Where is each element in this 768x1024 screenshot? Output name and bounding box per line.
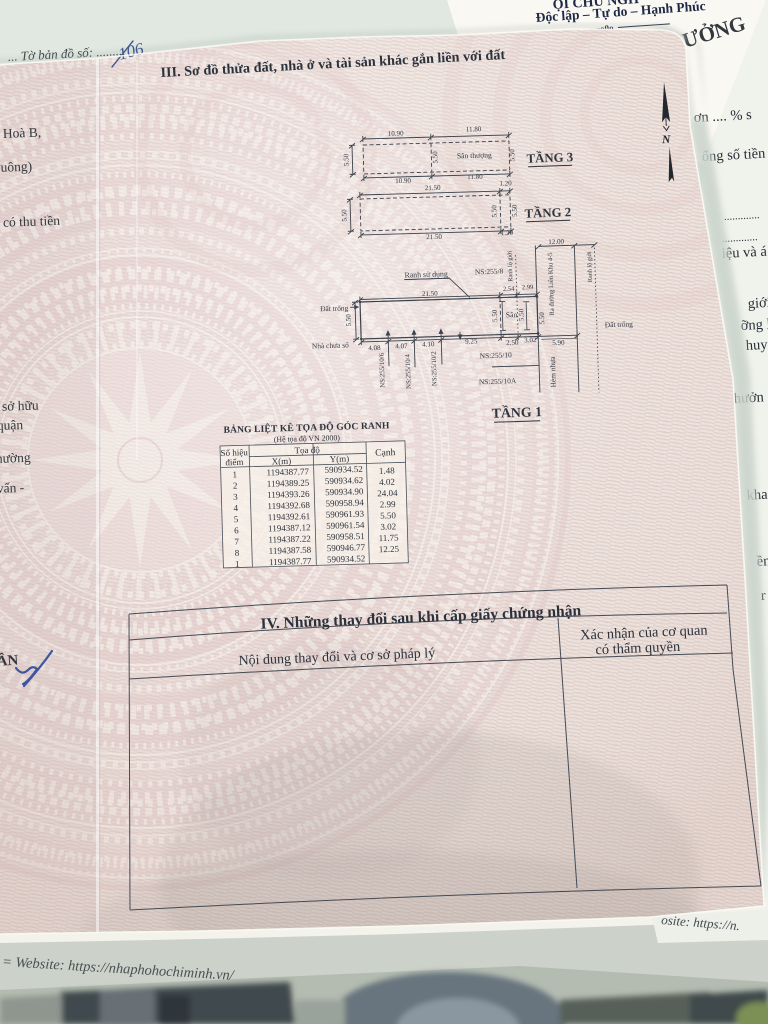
svg-text:6: 6	[234, 525, 239, 535]
svg-text:.............: .............	[724, 209, 761, 223]
svg-text:1194387.58: 1194387.58	[269, 545, 312, 556]
svg-text:5: 5	[234, 514, 239, 524]
svg-text:hường: hường	[0, 450, 31, 466]
svg-text:590958.51: 590958.51	[326, 531, 365, 542]
svg-text:Ranh lộ giới: Ranh lộ giới	[586, 251, 594, 282]
svg-text:3.02: 3.02	[380, 521, 396, 531]
svg-text:5.50: 5.50	[490, 205, 498, 218]
svg-text:1.20: 1.20	[501, 229, 514, 237]
svg-text:Cạnh: Cạnh	[375, 447, 396, 459]
svg-text:4: 4	[233, 503, 238, 513]
svg-text:ỡng là:: ỡng là:	[740, 316, 768, 334]
svg-text:1.48: 1.48	[379, 465, 396, 475]
svg-text:12.25: 12.25	[379, 544, 400, 555]
svg-text:có thẩm quyền: có thẩm quyền	[595, 639, 680, 658]
svg-text:590934.52: 590934.52	[327, 553, 366, 564]
svg-text:điểm: điểm	[225, 457, 243, 467]
svg-text:X(m): X(m)	[272, 456, 292, 467]
svg-text:huyển: huyển	[745, 336, 768, 354]
svg-text:5.50: 5.50	[380, 510, 397, 520]
svg-text:590946.77: 590946.77	[327, 542, 366, 553]
svg-text:5.50: 5.50	[517, 308, 525, 321]
svg-text:NS:255/10A: NS:255/10A	[479, 376, 517, 386]
svg-text:5.50: 5.50	[342, 153, 350, 166]
svg-text:Hoà B,: Hoà B,	[3, 125, 42, 141]
svg-text:Ranh lộ giới: Ranh lộ giới	[506, 250, 514, 281]
svg-text:Nhà chưa số: Nhà chưa số	[312, 340, 349, 350]
svg-text:21.50: 21.50	[425, 184, 441, 192]
svg-text:2.54: 2.54	[503, 286, 515, 293]
svg-text:Sân: Sân	[506, 310, 518, 319]
svg-text:2.99: 2.99	[380, 499, 397, 509]
svg-text:11.75: 11.75	[379, 533, 400, 544]
svg-text:1: 1	[232, 469, 237, 479]
svg-text:4.10: 4.10	[422, 340, 435, 348]
svg-text:11.80: 11.80	[467, 173, 483, 181]
svg-text:590958.94: 590958.94	[325, 497, 364, 508]
svg-text:1194387.22: 1194387.22	[268, 534, 311, 545]
svg-text:7: 7	[234, 536, 239, 546]
svg-text:2.50: 2.50	[506, 339, 519, 347]
svg-text:1194393.26: 1194393.26	[267, 489, 310, 500]
svg-text:Hẻm nhựa: Hẻm nhựa	[548, 356, 558, 388]
svg-text:NS:255/10/4: NS:255/10/4	[405, 353, 413, 389]
svg-text:590934.90: 590934.90	[325, 486, 364, 497]
svg-text:1.20: 1.20	[499, 179, 512, 187]
svg-text:1: 1	[235, 559, 240, 569]
svg-text:4.07: 4.07	[395, 342, 408, 350]
svg-text:NS:255/10/2: NS:255/10/2	[431, 351, 439, 387]
svg-text:giới th: giới th	[747, 294, 768, 312]
svg-text:5.50: 5.50	[511, 204, 519, 217]
svg-text:1194387.77: 1194387.77	[266, 466, 309, 477]
svg-text:Tọa độ: Tọa độ	[294, 445, 320, 456]
svg-text:5.90: 5.90	[552, 339, 565, 347]
svg-text:590961.93: 590961.93	[326, 509, 365, 520]
svg-text:NS:255/10: NS:255/10	[480, 350, 513, 360]
svg-text:Sân thượng: Sân thượng	[457, 150, 492, 160]
svg-text:NS:255/8: NS:255/8	[475, 266, 504, 276]
svg-text:1194387.77: 1194387.77	[269, 556, 312, 567]
svg-text:2: 2	[233, 481, 238, 491]
svg-text:590961.54: 590961.54	[326, 520, 365, 531]
svg-text:2.99: 2.99	[522, 284, 534, 291]
svg-text:590934.52: 590934.52	[324, 464, 363, 475]
svg-text:NS:255/10/6: NS:255/10/6	[379, 352, 387, 388]
svg-text:Y(m): Y(m)	[330, 454, 350, 465]
svg-text:12.00: 12.00	[548, 238, 564, 247]
svg-text:TẦNG 3: TẦNG 3	[526, 149, 573, 166]
svg-text:4.08: 4.08	[368, 344, 381, 352]
svg-text:5.50: 5.50	[431, 151, 439, 164]
svg-text:4.02: 4.02	[379, 477, 395, 487]
svg-text:5.50: 5.50	[340, 209, 348, 222]
svg-text:Đất trống: Đất trống	[605, 319, 634, 329]
svg-text:TẦNG 1: TẦNG 1	[491, 403, 542, 421]
svg-text:5.50: 5.50	[508, 149, 516, 162]
svg-text:3.02: 3.02	[524, 336, 537, 344]
svg-text:t có thu tiền: t có thu tiền	[0, 213, 60, 230]
svg-text:5.50: 5.50	[538, 312, 546, 325]
svg-text:21.50: 21.50	[422, 290, 438, 299]
svg-text:i sở hữu: i sở hữu	[0, 397, 39, 414]
svg-text:10.90: 10.90	[388, 129, 404, 137]
svg-text:8: 8	[235, 548, 240, 558]
svg-text:9.25: 9.25	[465, 337, 478, 345]
svg-text:N: N	[661, 134, 672, 147]
svg-text:TẦNG 2: TẦNG 2	[524, 204, 571, 221]
svg-text:5.50: 5.50	[344, 314, 352, 327]
svg-text:vuông): vuông)	[0, 159, 32, 175]
svg-text:590934.62: 590934.62	[325, 475, 364, 486]
svg-text:quận: quận	[0, 417, 24, 433]
svg-text:1194389.25: 1194389.25	[267, 478, 310, 489]
svg-text:24.04: 24.04	[377, 488, 398, 499]
svg-text:21.50: 21.50	[426, 233, 442, 241]
svg-text:1194392.68: 1194392.68	[267, 500, 310, 511]
svg-text:11.80: 11.80	[466, 125, 482, 133]
svg-text:(Hệ tọa độ VN 2000): (Hệ tọa độ VN 2000)	[274, 433, 341, 444]
svg-text:vấn -: vấn -	[0, 480, 25, 496]
svg-text:Đất trống: Đất trống	[320, 303, 349, 313]
svg-text:1194387.12: 1194387.12	[268, 522, 311, 533]
svg-text:5.50: 5.50	[491, 309, 499, 322]
svg-text:3: 3	[233, 492, 238, 502]
svg-text:10.90: 10.90	[395, 177, 411, 185]
svg-text:1194392.61: 1194392.61	[268, 511, 311, 522]
